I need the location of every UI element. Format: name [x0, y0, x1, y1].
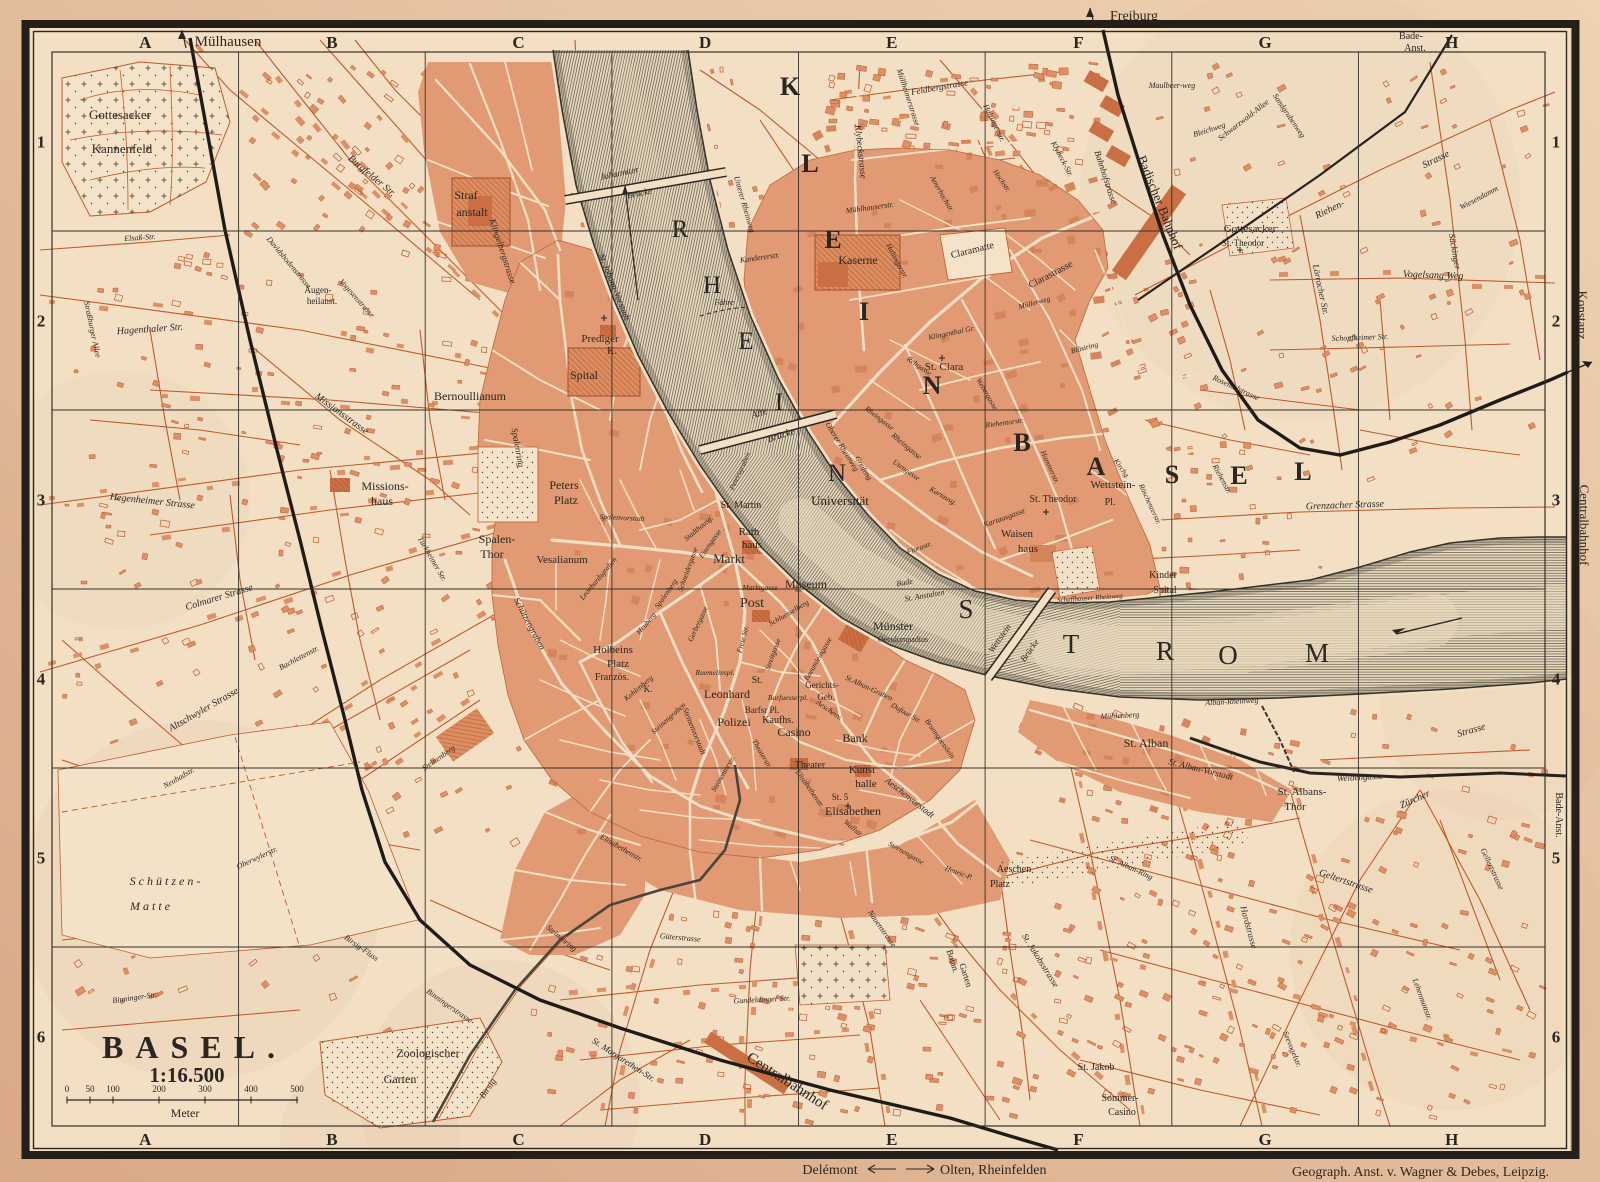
svg-text:Münster: Münster: [873, 619, 913, 633]
svg-text:Leonhard: Leonhard: [704, 687, 750, 701]
svg-text:Kaufhs.: Kaufhs.: [762, 715, 793, 726]
svg-text:H: H: [1445, 1130, 1458, 1149]
svg-text:K: K: [780, 72, 801, 101]
svg-text:L: L: [1294, 457, 1311, 486]
svg-text:K.: K.: [607, 346, 617, 357]
svg-text:Thor: Thor: [1284, 801, 1306, 813]
svg-text:Gottesacker: Gottesacker: [1224, 223, 1277, 235]
svg-text:Holbeins: Holbeins: [593, 644, 633, 656]
svg-text:Delémont: Delémont: [802, 1163, 857, 1178]
svg-text:Waisen: Waisen: [1001, 528, 1034, 540]
svg-text:Centralbahnhof: Centralbahnhof: [1577, 485, 1592, 567]
svg-text:Rath: Rath: [739, 526, 760, 538]
svg-text:Bank: Bank: [842, 731, 867, 745]
svg-text:St. Alban: St. Alban: [1124, 736, 1169, 750]
svg-text:G: G: [1258, 1130, 1271, 1149]
svg-text:5: 5: [37, 849, 46, 868]
svg-text:S: S: [1165, 460, 1179, 489]
svg-text:BASEL.: BASEL.: [102, 1029, 287, 1065]
svg-text:D: D: [699, 33, 711, 52]
svg-text:Casino: Casino: [1108, 1107, 1136, 1118]
svg-text:Spalen-: Spalen-: [479, 532, 516, 546]
svg-text:B: B: [1013, 428, 1030, 457]
svg-text:H: H: [1445, 33, 1458, 52]
svg-text:N: N: [828, 460, 846, 487]
svg-text:Vogelsang Weg: Vogelsang Weg: [1403, 269, 1464, 282]
svg-text:4: 4: [1552, 670, 1561, 689]
svg-text:L: L: [801, 149, 818, 178]
svg-text:Aeschen: Aeschen: [997, 864, 1031, 875]
svg-text:H: H: [703, 272, 721, 299]
svg-text:0: 0: [65, 1084, 70, 1094]
svg-text:Missions-: Missions-: [361, 479, 408, 493]
svg-text:Gerichts-: Gerichts-: [805, 680, 839, 690]
svg-text:B: B: [326, 1130, 337, 1149]
svg-text:Freiburg: Freiburg: [1110, 9, 1158, 24]
svg-text:haus: haus: [371, 494, 393, 508]
svg-text:Ruemelinspl.: Ruemelinspl.: [695, 668, 735, 677]
svg-text:S: S: [958, 594, 973, 624]
svg-text:St.: St.: [752, 675, 763, 686]
svg-text:D: D: [699, 1130, 711, 1149]
svg-text:I: I: [775, 389, 783, 416]
svg-text:M: M: [1305, 638, 1329, 668]
svg-text:A: A: [1087, 452, 1106, 481]
svg-text:G: G: [1258, 33, 1271, 52]
svg-text:F: F: [1073, 33, 1083, 52]
svg-text:Meter: Meter: [171, 1106, 200, 1120]
svg-text:Casino: Casino: [777, 725, 810, 739]
svg-text:Kaserne: Kaserne: [838, 253, 877, 267]
svg-text:S c h ü t z e n -: S c h ü t z e n -: [130, 874, 201, 888]
svg-text:Platz: Platz: [554, 493, 578, 507]
svg-text:Thor: Thor: [480, 547, 503, 561]
svg-text:Prediger: Prediger: [581, 333, 619, 345]
svg-text:R: R: [672, 216, 689, 243]
svg-text:Platz: Platz: [990, 879, 1011, 890]
svg-text:6: 6: [37, 1028, 46, 1047]
svg-text:500: 500: [290, 1084, 304, 1094]
svg-text:R: R: [1156, 636, 1174, 666]
svg-text:200: 200: [152, 1084, 166, 1094]
svg-text:50: 50: [86, 1084, 96, 1094]
svg-text:2: 2: [37, 312, 46, 331]
svg-text:Oecolompadius: Oecolompadius: [878, 635, 928, 644]
svg-text:Wettstein-: Wettstein-: [1091, 479, 1136, 491]
svg-text:Garten: Garten: [384, 1072, 417, 1086]
svg-text:A: A: [139, 33, 152, 52]
svg-text:A: A: [139, 1130, 152, 1149]
svg-text:1: 1: [37, 133, 46, 152]
svg-text:St. Theodor: St. Theodor: [1029, 494, 1077, 505]
svg-text:St. Jakob: St. Jakob: [1078, 1062, 1115, 1073]
svg-text:Polizei: Polizei: [717, 715, 751, 729]
svg-text:O: O: [1218, 640, 1238, 670]
svg-text:E: E: [886, 33, 897, 52]
svg-text:Zoologischer: Zoologischer: [396, 1046, 459, 1060]
svg-text:I: I: [859, 297, 869, 326]
svg-text:5: 5: [1552, 849, 1561, 868]
svg-text:3: 3: [1552, 491, 1561, 510]
svg-text:Bernoullianum: Bernoullianum: [434, 389, 507, 403]
svg-text:B: B: [326, 33, 337, 52]
svg-text:4: 4: [37, 670, 46, 689]
svg-text:Mülhausen: Mülhausen: [195, 34, 262, 50]
svg-text:Kannenfeld: Kannenfeld: [92, 141, 153, 156]
svg-text:Barfuesserpl.: Barfuesserpl.: [768, 693, 808, 702]
svg-text:anstalt: anstalt: [456, 205, 488, 219]
svg-text:Bade-: Bade-: [1399, 31, 1423, 42]
svg-text:3: 3: [37, 491, 46, 510]
svg-text:C: C: [512, 33, 524, 52]
svg-text:2: 2: [1552, 312, 1561, 331]
svg-text:Geograph. Anst. v. Wagner & De: Geograph. Anst. v. Wagner & Debes, Leipz…: [1292, 1165, 1549, 1180]
svg-text:Sommer-: Sommer-: [1101, 1093, 1138, 1104]
svg-text:St. Martin: St. Martin: [721, 500, 762, 511]
svg-text:M a t t e: M a t t e: [129, 899, 171, 913]
svg-text:300: 300: [198, 1084, 212, 1094]
svg-text:St. Albans-: St. Albans-: [1278, 786, 1327, 798]
svg-text:Post: Post: [740, 596, 764, 611]
svg-text:Museum: Museum: [785, 577, 828, 591]
svg-text:100: 100: [106, 1084, 120, 1094]
svg-text:Konstanz: Konstanz: [1575, 290, 1590, 339]
svg-text:Vesalianum: Vesalianum: [536, 554, 588, 566]
svg-text:Maulbeer-weg: Maulbeer-weg: [1148, 81, 1196, 90]
svg-text:Marktgasse: Marktgasse: [742, 583, 779, 592]
svg-text:Platz: Platz: [607, 658, 629, 670]
svg-text:halle: halle: [855, 778, 876, 790]
svg-text:F: F: [1073, 1130, 1083, 1149]
svg-text:Anst.: Anst.: [1404, 43, 1425, 54]
svg-text:400: 400: [244, 1084, 258, 1094]
svg-text:Elisabethen: Elisabethen: [825, 804, 881, 818]
svg-text:1: 1: [1552, 133, 1561, 152]
svg-text:St. 5: St. 5: [832, 792, 849, 802]
svg-text:T: T: [1063, 629, 1080, 659]
svg-text:St. Theodor: St. Theodor: [1222, 238, 1264, 248]
svg-text:Fähre: Fähre: [713, 298, 734, 307]
svg-text:Kinder: Kinder: [1149, 570, 1177, 581]
svg-text:Bade-Anst.: Bade-Anst.: [1553, 792, 1564, 837]
svg-text:Französ.: Französ.: [595, 672, 629, 683]
svg-text:heilanst.: heilanst.: [307, 296, 337, 306]
svg-text:Olten, Rheinfelden: Olten, Rheinfelden: [940, 1163, 1047, 1178]
svg-text:Pl.: Pl.: [1105, 497, 1116, 508]
svg-text:E: E: [886, 1130, 897, 1149]
svg-text:C: C: [512, 1130, 524, 1149]
svg-text:Straf: Straf: [454, 188, 477, 202]
svg-text:Barfsr Pl.: Barfsr Pl.: [745, 705, 780, 715]
svg-text:Kunst: Kunst: [849, 764, 875, 776]
svg-text:Universität: Universität: [811, 493, 869, 508]
svg-text:haus: haus: [1018, 543, 1038, 555]
svg-text:haus: haus: [742, 539, 762, 551]
svg-text:Spital: Spital: [570, 368, 599, 382]
svg-text:E: E: [738, 328, 753, 355]
svg-text:E: E: [824, 225, 841, 254]
svg-text:Spital: Spital: [1153, 585, 1177, 596]
svg-text:6: 6: [1552, 1028, 1561, 1047]
svg-text:Gottesacker: Gottesacker: [89, 107, 152, 122]
svg-text:Markt: Markt: [713, 551, 745, 566]
svg-text:E: E: [1230, 461, 1247, 490]
svg-text:Peters: Peters: [549, 478, 579, 492]
